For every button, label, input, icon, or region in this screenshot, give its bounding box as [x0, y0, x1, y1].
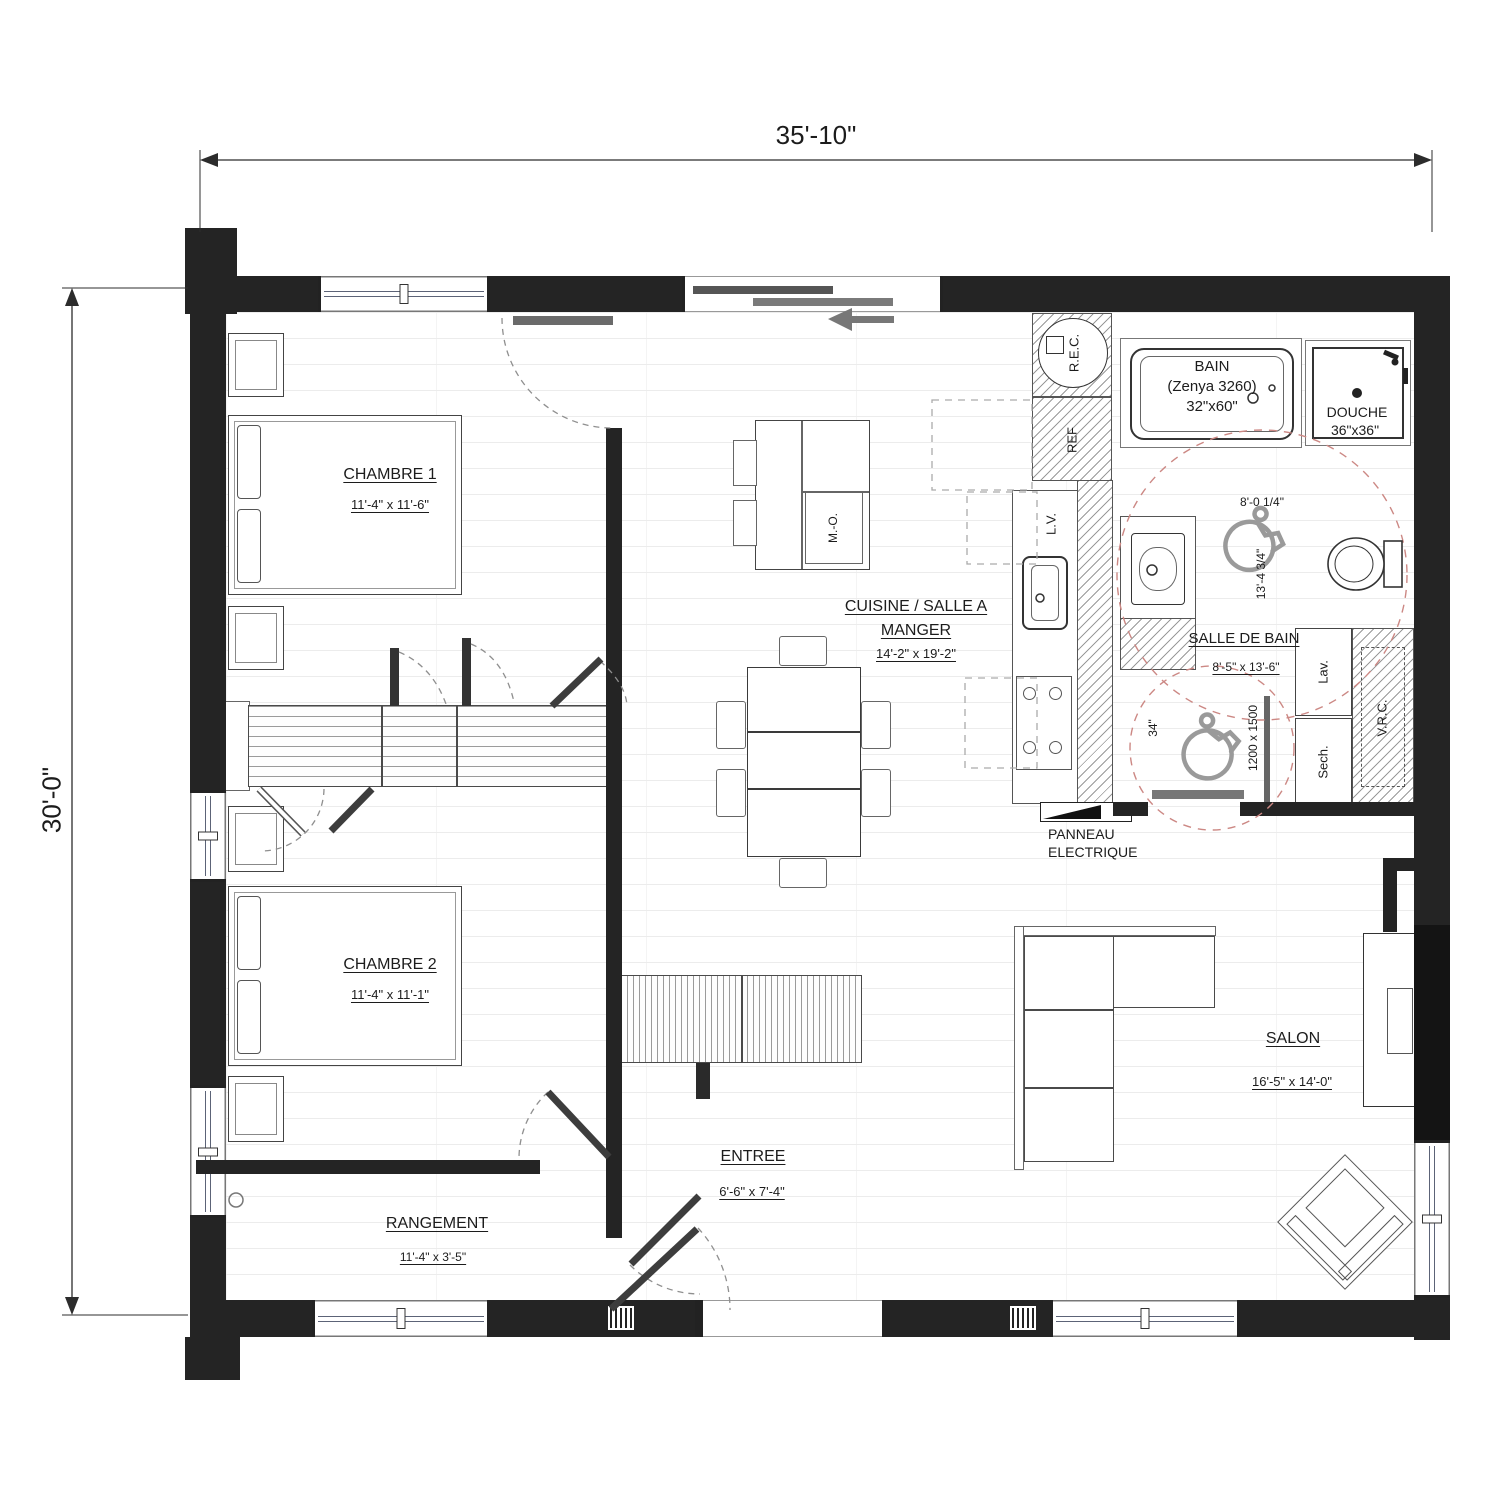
window-mullion [198, 1147, 218, 1156]
walls-layer [0, 0, 1500, 1500]
wall-rangement [196, 1160, 540, 1174]
room-size-chambre1: 11'-4" x 11'-6" [351, 497, 429, 512]
overall-height-dim: 30'-0" [37, 767, 68, 833]
door-header [513, 316, 613, 325]
door-jamb [882, 1300, 890, 1337]
room-label-chambre2: CHAMBRE 2 [343, 956, 436, 974]
lv-label: L.V. [1044, 513, 1059, 535]
window-mullion [397, 1308, 406, 1329]
window-right [1414, 1140, 1450, 1298]
mo-label: M.-O. [826, 513, 840, 543]
wall-left [190, 882, 226, 1085]
wall-bottom [890, 1300, 998, 1337]
wall-left [190, 276, 226, 790]
bath-depth-dim: 13'-4 3/4" [1254, 549, 1268, 600]
wall-post-vent [998, 1300, 1050, 1337]
patio-door-panel [753, 298, 893, 306]
door-jamb [695, 1300, 703, 1337]
patio-door [682, 276, 943, 312]
wall-bottom [190, 1300, 312, 1337]
wall-rangement-stub [606, 1160, 622, 1238]
room-label-cuisine-1: CUISINE / SALLE A [845, 598, 987, 616]
window-mullion [198, 832, 218, 841]
wall-top [943, 276, 1433, 312]
wall-top [490, 276, 682, 312]
room-label-entree: ENTREE [721, 1148, 786, 1166]
room-label-chambre1: CHAMBRE 1 [343, 466, 436, 484]
window-left-1 [190, 790, 226, 882]
bath-width-dim: 8'-0 1/4" [1240, 495, 1284, 509]
bain-label-2: (Zenya 3260) [1167, 378, 1256, 395]
transfer-space-dim: 1200 x 1500 [1246, 705, 1260, 771]
window-top-chambre1 [318, 276, 490, 312]
bain-label-1: BAIN [1194, 358, 1229, 375]
wall-bedrooms-kitchen [606, 428, 622, 1165]
wall-bottom [1240, 1300, 1416, 1337]
room-size-cuisine: 14'-2" x 19'-2" [876, 646, 956, 661]
room-label-cuisine-2: MANGER [881, 622, 951, 640]
panneau-label-1: PANNEAU [1048, 826, 1115, 842]
room-size-entree: 6'-6" x 7'-4" [719, 1184, 785, 1199]
wall-bath-bottom [1240, 802, 1414, 816]
window-bottom-1 [312, 1300, 490, 1337]
secheuse-label: Sech. [1316, 745, 1331, 778]
wall-right [1414, 1298, 1450, 1340]
entrance-door-opening [695, 1300, 890, 1337]
window-left-2 [190, 1085, 226, 1218]
room-label-salon: SALON [1266, 1030, 1320, 1048]
room-size-rangement: 11'-4" x 3'-5" [400, 1250, 466, 1264]
bath-door-clearance-dim: 34" [1146, 719, 1160, 737]
rec-label: R.E.C. [1067, 334, 1082, 372]
laveuse-label: Lav. [1316, 660, 1331, 684]
douche-label-2: 36"x36" [1331, 422, 1379, 438]
wall-bath-bottom [1113, 802, 1148, 816]
vent-glyph [1010, 1306, 1036, 1330]
wall-post-vent [598, 1300, 645, 1337]
room-label-rangement: RANGEMENT [386, 1215, 488, 1233]
room-size-salon: 16'-5" x 14'-0" [1252, 1074, 1332, 1089]
vent-glyph [608, 1306, 634, 1330]
corner-post-bottomleft [185, 1337, 240, 1380]
vrc-label: V.R.C. [1375, 699, 1390, 736]
wall-bottom [490, 1300, 598, 1337]
window-mullion [400, 284, 409, 304]
wall-salon-stub [1390, 858, 1414, 871]
floor-plan: 35'-10" 30'-0" CHAMBRE 1 11'-4" x 11'-6"… [0, 0, 1500, 1500]
room-size-chambre2: 11'-4" x 11'-1" [351, 987, 429, 1002]
patio-door-panel [693, 286, 833, 294]
douche-label-1: DOUCHE [1327, 404, 1388, 420]
bain-label-3: 32"x60" [1186, 398, 1238, 415]
ref-label: REF [1065, 427, 1080, 453]
panneau-label-2: ELECTRIQUE [1048, 844, 1137, 860]
room-label-salle-de-bain: SALLE DE BAIN [1189, 630, 1300, 647]
window-bottom-2 [1050, 1300, 1240, 1337]
fireplace-wall [1414, 925, 1450, 1140]
window-mullion [1422, 1215, 1442, 1224]
wall-bottom [645, 1300, 695, 1337]
window-mullion [1141, 1308, 1150, 1329]
room-size-salle-de-bain: 8'-5" x 13'-6" [1212, 660, 1279, 674]
overall-width-dim: 35'-10" [776, 120, 857, 151]
